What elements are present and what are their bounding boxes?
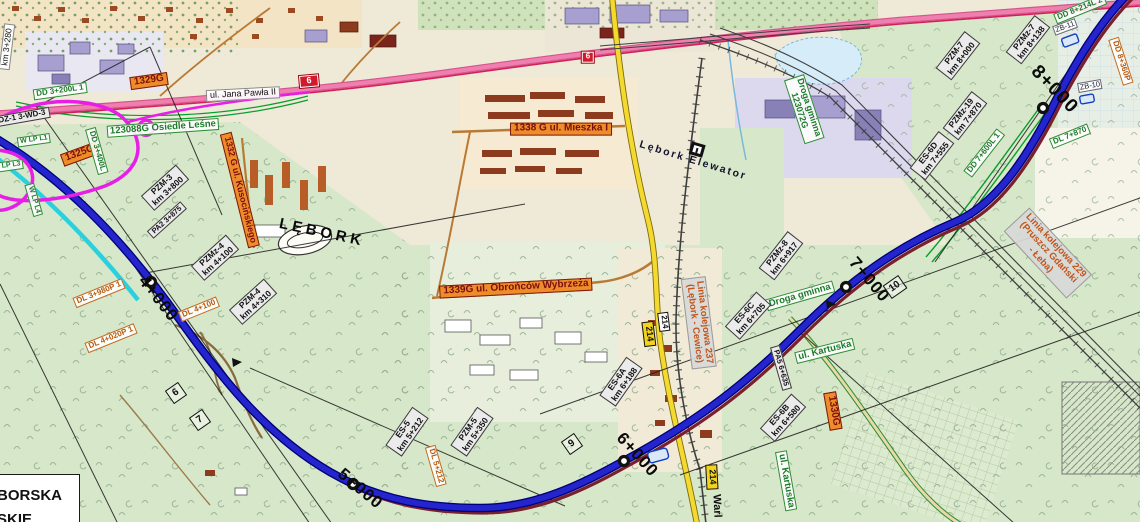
road-shield-214-white: 214 (658, 312, 671, 333)
map-canvas[interactable]: LĘBORK Lębork Elewator 1329G 1325G 1332 … (0, 0, 1140, 522)
sheet-title-line2: SKIE (0, 511, 32, 522)
street-name-partial: Warl (709, 494, 722, 518)
road-shield-214-south: 214 (705, 464, 718, 490)
sheet-title-line1: BORSKA (0, 487, 62, 504)
road-shield-dk6-small: 6 (582, 52, 594, 63)
road-shield-dk6: 6 (299, 74, 319, 87)
sheet-title-box: BORSKA SKIE (0, 474, 80, 522)
street-label-1338g: 1338 G ul. Mieszka I (510, 123, 612, 136)
